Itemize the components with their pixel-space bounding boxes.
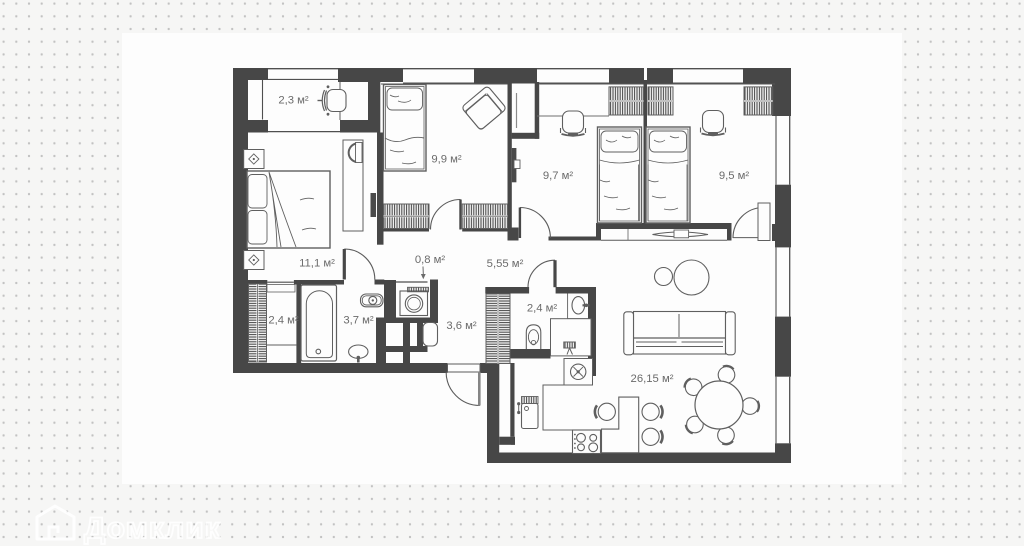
svg-text:3,6 м²: 3,6 м²: [446, 320, 477, 332]
svg-text:Домклик: Домклик: [84, 512, 221, 545]
svg-text:2,3 м²: 2,3 м²: [278, 95, 309, 107]
svg-text:9,7 м²: 9,7 м²: [543, 170, 574, 182]
svg-text:9,9 м²: 9,9 м²: [431, 154, 462, 166]
svg-text:3,7 м²: 3,7 м²: [343, 315, 374, 327]
svg-text:9,5 м²: 9,5 м²: [719, 170, 750, 182]
svg-text:11,1 м²: 11,1 м²: [299, 258, 335, 270]
svg-text:0,8 м²: 0,8 м²: [415, 254, 446, 266]
svg-text:5,55 м²: 5,55 м²: [487, 258, 524, 270]
svg-text:26,15 м²: 26,15 м²: [631, 373, 674, 385]
svg-text:2,4 м²: 2,4 м²: [268, 315, 299, 327]
svg-text:2,4 м²: 2,4 м²: [527, 303, 558, 315]
